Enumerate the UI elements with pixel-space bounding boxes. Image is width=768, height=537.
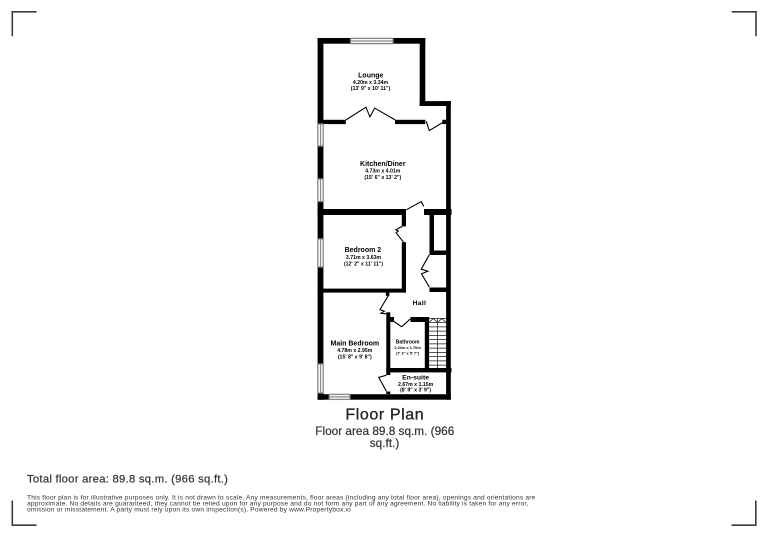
- svg-text:(7' 3" x 5' 7"): (7' 3" x 5' 7"): [396, 350, 420, 355]
- svg-text:Bedroom 2: Bedroom 2: [345, 247, 382, 254]
- svg-text:omission or misstatement. A pa: omission or misstatement. A party must r…: [27, 506, 351, 513]
- svg-text:Main Bedroom: Main Bedroom: [330, 340, 379, 347]
- svg-text:3.71m x 3.63m: 3.71m x 3.63m: [346, 255, 382, 261]
- svg-text:(12' 2" x 11' 11"): (12' 2" x 11' 11"): [344, 261, 383, 267]
- svg-text:Lounge: Lounge: [358, 73, 383, 80]
- svg-text:(8' 9" x 3' 9"): (8' 9" x 3' 9"): [400, 388, 431, 394]
- svg-text:Hall: Hall: [413, 300, 427, 307]
- svg-text:4.73m x 4.01m: 4.73m x 4.01m: [365, 169, 401, 175]
- svg-text:4.78m x 2.95m: 4.78m x 2.95m: [337, 348, 373, 354]
- svg-text:(15' 6" x 13' 2"): (15' 6" x 13' 2"): [364, 175, 401, 181]
- svg-text:sq.ft.): sq.ft.): [370, 436, 400, 450]
- svg-text:(15' 8" x 9' 8"): (15' 8" x 9' 8"): [338, 355, 372, 361]
- svg-text:(13' 9" x 10' 11"): (13' 9" x 10' 11"): [351, 86, 391, 92]
- svg-text:Kitchen/Diner: Kitchen/Diner: [360, 161, 406, 168]
- svg-text:Floor Plan: Floor Plan: [345, 407, 424, 424]
- svg-text:Total floor area: 89.8 sq.m. (: Total floor area: 89.8 sq.m. (966 sq.ft.…: [27, 474, 228, 486]
- svg-text:2.22m x 1.70m: 2.22m x 1.70m: [394, 345, 421, 350]
- svg-text:En-suite: En-suite: [402, 374, 429, 381]
